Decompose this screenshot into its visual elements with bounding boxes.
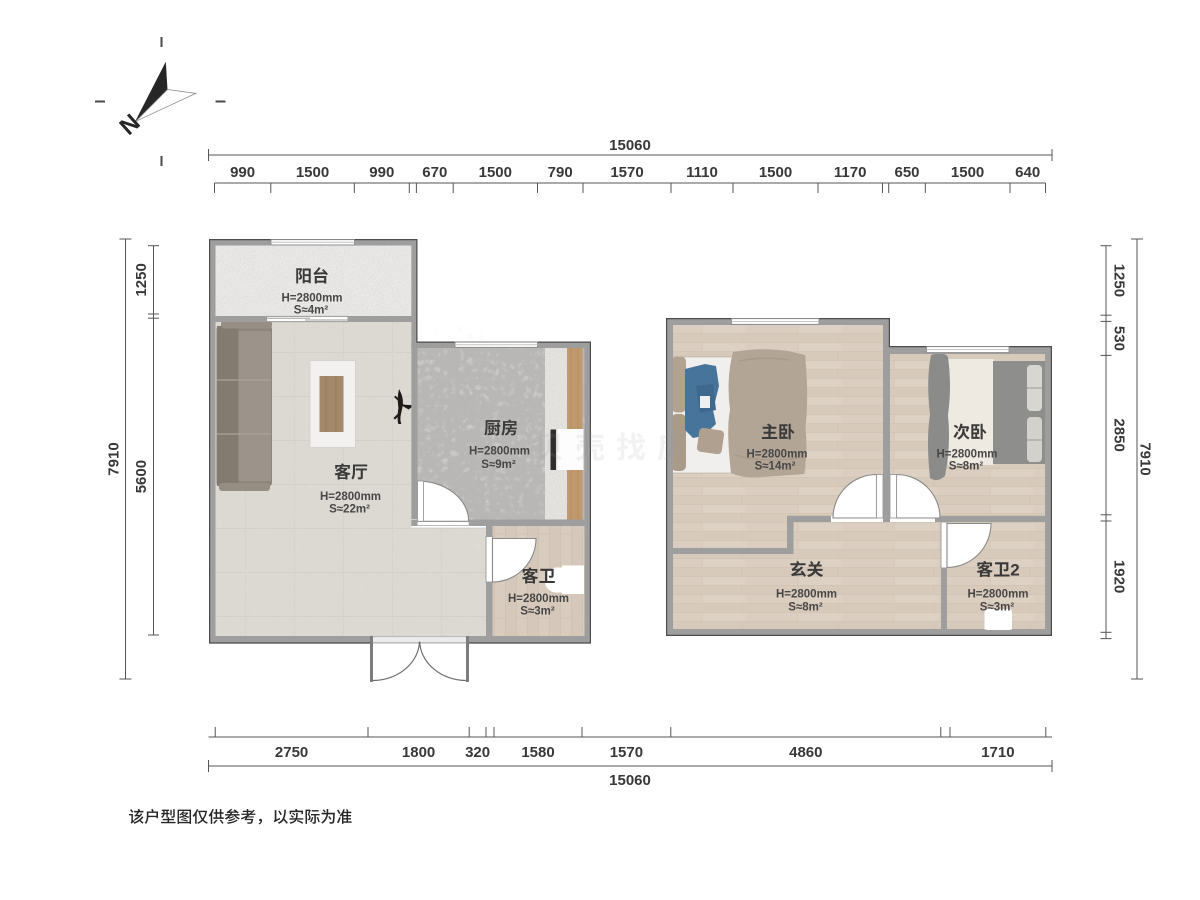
- svg-text:4860: 4860: [789, 744, 822, 761]
- svg-text:H=2800mm: H=2800mm: [746, 449, 807, 461]
- svg-text:670: 670: [422, 164, 447, 181]
- svg-text:1920: 1920: [1111, 560, 1128, 593]
- svg-text:S≈8m²: S≈8m²: [949, 461, 984, 473]
- svg-text:1500: 1500: [759, 164, 792, 181]
- svg-text:1110: 1110: [686, 164, 718, 181]
- svg-text:15060: 15060: [609, 137, 651, 154]
- svg-text:1250: 1250: [1111, 264, 1128, 297]
- svg-text:15060: 15060: [609, 772, 651, 789]
- svg-text:S≈4m²: S≈4m²: [294, 305, 329, 317]
- svg-text:1580: 1580: [521, 744, 554, 761]
- svg-text:2: 2: [1010, 561, 1019, 580]
- svg-text:7910: 7910: [1137, 442, 1154, 475]
- svg-text:1170: 1170: [834, 164, 867, 181]
- svg-text:990: 990: [230, 164, 255, 181]
- svg-text:H=2800mm: H=2800mm: [320, 491, 381, 503]
- svg-text:1250: 1250: [133, 263, 150, 296]
- svg-text:H=2800mm: H=2800mm: [936, 449, 997, 461]
- svg-text:H=2800mm: H=2800mm: [508, 593, 569, 605]
- svg-text:2850: 2850: [1111, 418, 1128, 451]
- svg-text:7910: 7910: [106, 442, 123, 475]
- svg-text:1570: 1570: [610, 744, 643, 761]
- svg-text:S≈14m²: S≈14m²: [755, 461, 796, 473]
- svg-text:H=2800mm: H=2800mm: [776, 589, 837, 601]
- svg-text:790: 790: [548, 164, 573, 181]
- svg-text:S≈22m²: S≈22m²: [329, 504, 370, 516]
- svg-text:320: 320: [465, 744, 490, 761]
- svg-text:1800: 1800: [402, 744, 435, 761]
- svg-text:S≈9m²: S≈9m²: [481, 459, 516, 471]
- svg-text:650: 650: [894, 164, 919, 181]
- svg-text:1500: 1500: [296, 164, 329, 181]
- svg-text:S≈3m²: S≈3m²: [980, 602, 1015, 614]
- svg-text:5600: 5600: [133, 460, 150, 493]
- svg-text:1500: 1500: [951, 164, 984, 181]
- svg-text:H=2800mm: H=2800mm: [281, 293, 342, 305]
- svg-text:1500: 1500: [479, 164, 512, 181]
- svg-text:640: 640: [1015, 164, 1040, 181]
- svg-text:1570: 1570: [610, 164, 643, 181]
- svg-text:1710: 1710: [981, 744, 1014, 761]
- svg-text:530: 530: [1111, 326, 1128, 351]
- svg-text:S≈8m²: S≈8m²: [788, 602, 823, 614]
- svg-text:2750: 2750: [275, 744, 308, 761]
- svg-text:H=2800mm: H=2800mm: [469, 446, 530, 458]
- svg-text:990: 990: [369, 164, 394, 181]
- svg-text:H=2800mm: H=2800mm: [967, 589, 1028, 601]
- svg-text:S≈3m²: S≈3m²: [520, 606, 555, 618]
